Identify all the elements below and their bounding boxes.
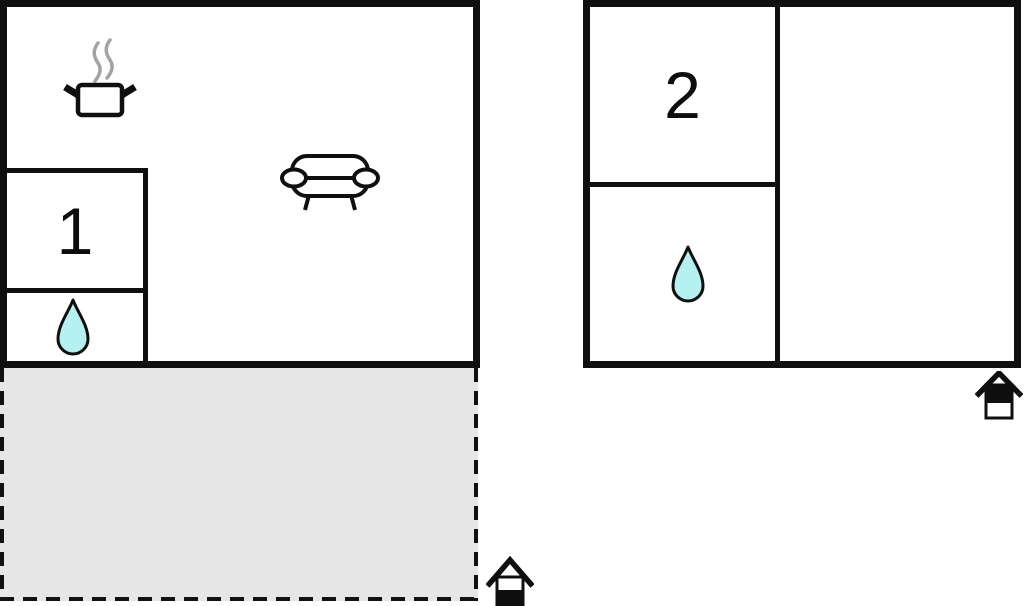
pot-body (78, 85, 122, 115)
water-drop-shape (58, 300, 88, 354)
floor-plan: 1 2 (0, 0, 1024, 606)
cooking-pot-icon (60, 35, 140, 120)
steam-line (106, 40, 112, 78)
entrance-house-icon (486, 556, 534, 606)
water-drop-icon (670, 245, 706, 303)
right-building-horizontal-wall (590, 182, 775, 187)
terrace-dashed-border-right (474, 368, 478, 601)
entrance-house-icon (975, 371, 1023, 421)
building-right-outline: 2 (583, 0, 1021, 368)
terrace-dashed-border-left (0, 368, 4, 601)
room1-bottom-wall (7, 288, 143, 293)
sofa-armrest-right (354, 170, 378, 187)
right-building-vertical-wall (775, 7, 780, 361)
room-2-label: 2 (590, 7, 775, 182)
house-filled-half (496, 590, 525, 606)
building-left-outline: 1 (0, 0, 480, 368)
terrace-dashed-border-bottom (0, 597, 478, 601)
steam-line (94, 43, 100, 81)
water-drop-icon (55, 298, 91, 356)
room-1-label: 1 (7, 173, 143, 288)
terrace-area (0, 368, 478, 601)
room1-right-wall (143, 168, 148, 361)
sofa-armrest-left (282, 170, 306, 187)
sofa-icon (280, 148, 380, 212)
water-drop-shape (673, 247, 703, 301)
